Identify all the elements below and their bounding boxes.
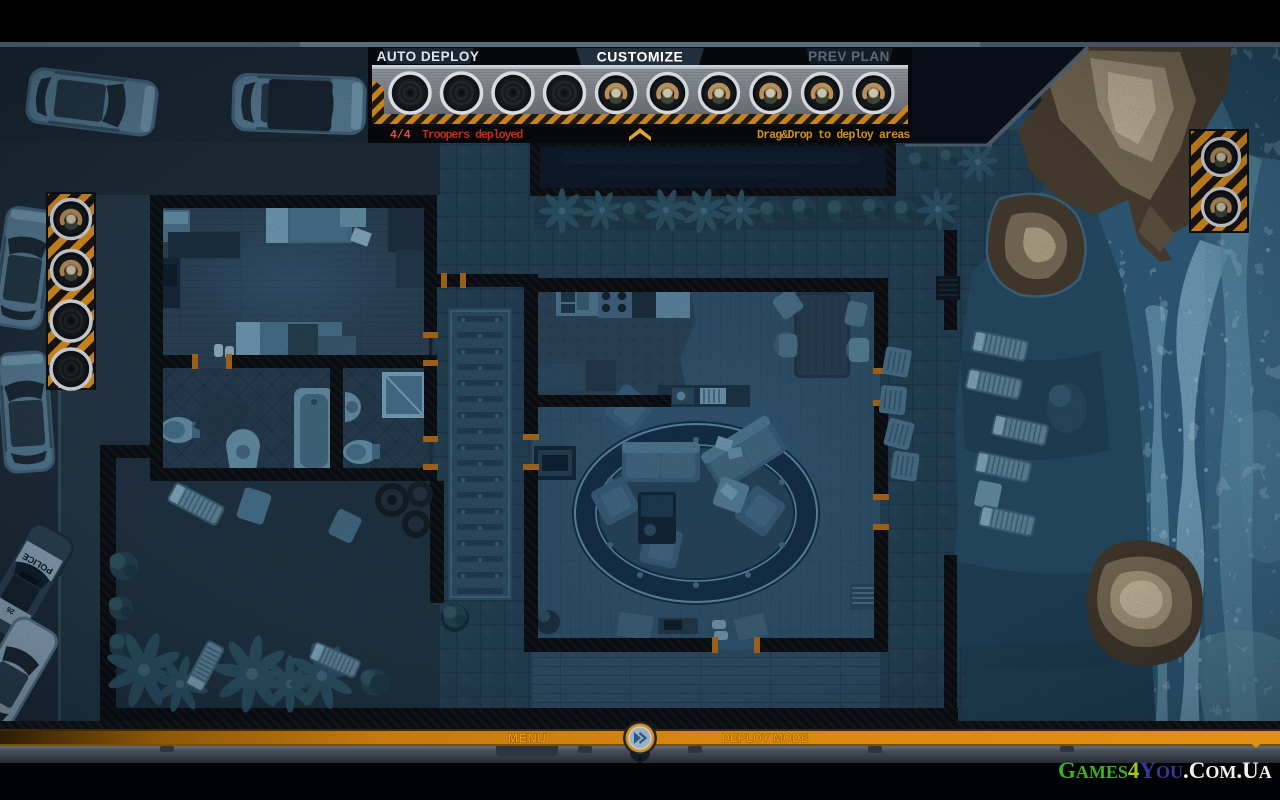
- svg-text:CUSTOMIZE: CUSTOMIZE: [597, 49, 684, 65]
- svg-text:DEPLOY MODE: DEPLOY MODE: [722, 733, 809, 745]
- svg-text:Drag&Drop to deploy areas: Drag&Drop to deploy areas: [757, 129, 910, 142]
- svg-text:GAMES4YOU.COM.UA: GAMES4YOU.COM.UA: [1058, 758, 1272, 783]
- svg-text:4/4: 4/4: [390, 129, 411, 142]
- svg-text:MENU: MENU: [507, 731, 546, 746]
- svg-text:Troopers deployed: Troopers deployed: [422, 129, 523, 142]
- svg-text:AUTO DEPLOY: AUTO DEPLOY: [377, 49, 480, 64]
- svg-text:PREV PLAN: PREV PLAN: [808, 49, 890, 64]
